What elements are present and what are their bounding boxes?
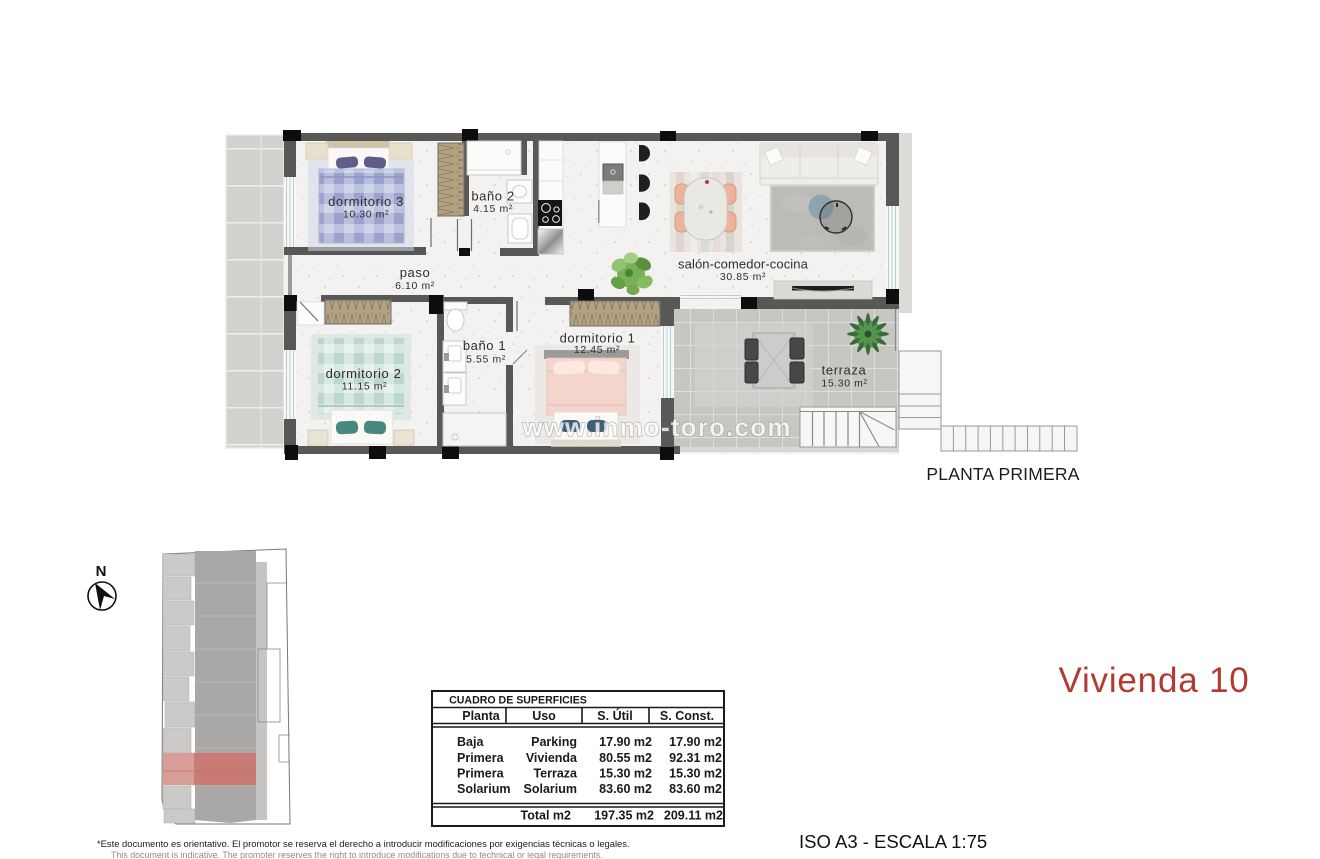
svg-text:92.31 m2: 92.31 m2 — [669, 751, 722, 765]
svg-text:15.30 m2: 15.30 m2 — [669, 767, 722, 781]
svg-text:209.11 m2: 209.11 m2 — [664, 809, 723, 823]
svg-text:CUADRO DE SUPERFICIES: CUADRO DE SUPERFICIES — [449, 695, 587, 707]
svg-text:terraza: terraza — [822, 363, 867, 378]
svg-text:11.15 m²: 11.15 m² — [342, 381, 387, 393]
svg-text:Primera: Primera — [457, 767, 505, 781]
svg-text:www.inmo-toro.com: www.inmo-toro.com — [521, 412, 791, 442]
svg-text:80.55 m2: 80.55 m2 — [599, 751, 652, 765]
svg-text:Primera: Primera — [457, 751, 505, 765]
svg-text:Parking: Parking — [531, 735, 577, 749]
svg-text:Solarium: Solarium — [524, 782, 578, 796]
svg-text:6.10 m²: 6.10 m² — [395, 280, 435, 292]
svg-text:S. Útil: S. Útil — [597, 708, 632, 723]
svg-text:Baja: Baja — [457, 735, 484, 749]
svg-text:12.45 m²: 12.45 m² — [574, 344, 620, 356]
svg-text:Total m2: Total m2 — [521, 809, 572, 823]
svg-text:ISO A3 - ESCALA 1:75: ISO A3 - ESCALA 1:75 — [799, 831, 987, 852]
svg-text:baño 1: baño 1 — [463, 338, 506, 353]
svg-text:5.55 m²: 5.55 m² — [466, 354, 506, 366]
svg-text:Solarium: Solarium — [457, 782, 511, 796]
svg-text:N: N — [96, 563, 107, 580]
svg-text:PLANTA PRIMERA: PLANTA PRIMERA — [926, 464, 1079, 484]
svg-text:Uso: Uso — [532, 709, 556, 723]
svg-text:83.60 m2: 83.60 m2 — [669, 782, 722, 796]
svg-text:Vivienda 10: Vivienda 10 — [1058, 661, 1249, 700]
svg-text:dormitorio 2: dormitorio 2 — [326, 366, 402, 381]
svg-text:17.90 m2: 17.90 m2 — [669, 735, 722, 749]
svg-text:This document is indicative. T: This document is indicative. The promote… — [111, 850, 603, 859]
svg-text:Vivienda: Vivienda — [526, 751, 578, 765]
svg-text:dormitorio 3: dormitorio 3 — [328, 194, 404, 209]
svg-text:S. Const.: S. Const. — [660, 709, 714, 723]
svg-text:Terraza: Terraza — [533, 767, 578, 781]
svg-text:83.60 m2: 83.60 m2 — [599, 782, 652, 796]
svg-text:197.35 m2: 197.35 m2 — [594, 809, 654, 823]
svg-text:*Este documento es orientativo: *Este documento es orientativo. El promo… — [97, 838, 630, 849]
svg-text:17.90 m2: 17.90 m2 — [599, 735, 652, 749]
svg-text:salón-comedor-cocina: salón-comedor-cocina — [678, 257, 809, 272]
svg-text:paso: paso — [400, 265, 431, 280]
svg-text:10.30 m²: 10.30 m² — [343, 209, 389, 221]
svg-text:Planta: Planta — [462, 709, 501, 723]
svg-text:4.15 m²: 4.15 m² — [473, 203, 513, 215]
svg-text:15.30 m²: 15.30 m² — [821, 378, 867, 390]
svg-text:30.85 m²: 30.85 m² — [720, 271, 766, 283]
svg-text:baño 2: baño 2 — [471, 189, 514, 204]
svg-text:15.30 m2: 15.30 m2 — [599, 767, 652, 781]
